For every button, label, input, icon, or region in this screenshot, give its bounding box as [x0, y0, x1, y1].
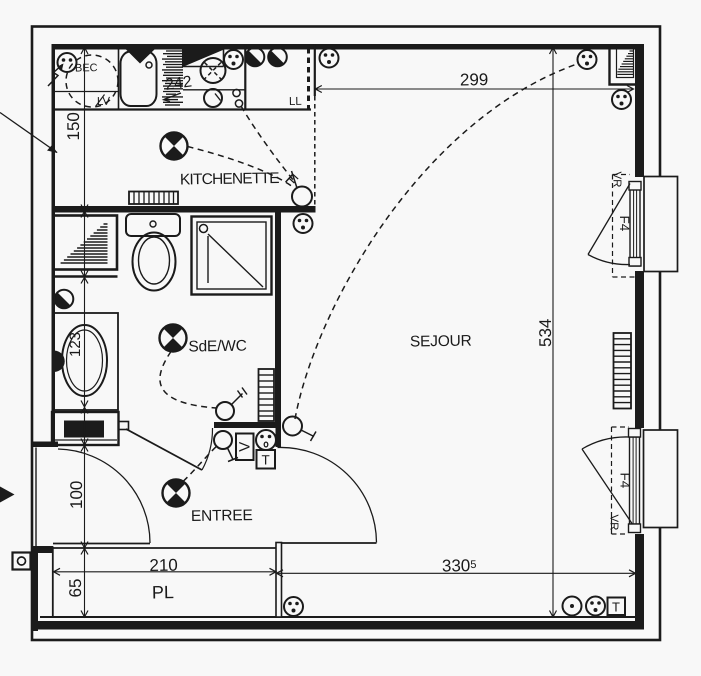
- svg-text:150: 150: [64, 112, 83, 140]
- svg-text:100: 100: [67, 481, 86, 509]
- svg-text:210: 210: [149, 556, 178, 575]
- svg-text:299: 299: [460, 70, 489, 89]
- svg-text:534: 534: [536, 319, 555, 347]
- svg-text:BEC: BEC: [75, 62, 98, 74]
- svg-text:VR: VR: [608, 515, 620, 531]
- svg-text:V: V: [236, 442, 253, 452]
- svg-text:SdE/WC: SdE/WC: [188, 338, 246, 356]
- svg-text:F4: F4: [618, 473, 633, 489]
- svg-text:KITCHENETTE: KITCHENETTE: [180, 170, 280, 189]
- svg-text:F4: F4: [617, 216, 632, 232]
- svg-text:65: 65: [66, 579, 85, 598]
- svg-text:LL: LL: [289, 96, 303, 108]
- svg-text:ENTREE: ENTREE: [191, 507, 253, 525]
- svg-text:VR: VR: [611, 172, 623, 188]
- svg-text:T: T: [262, 453, 270, 468]
- svg-text:123: 123: [67, 332, 84, 357]
- svg-text:PL: PL: [152, 582, 174, 602]
- svg-text:SEJOUR: SEJOUR: [410, 333, 472, 351]
- svg-text:T: T: [612, 600, 620, 615]
